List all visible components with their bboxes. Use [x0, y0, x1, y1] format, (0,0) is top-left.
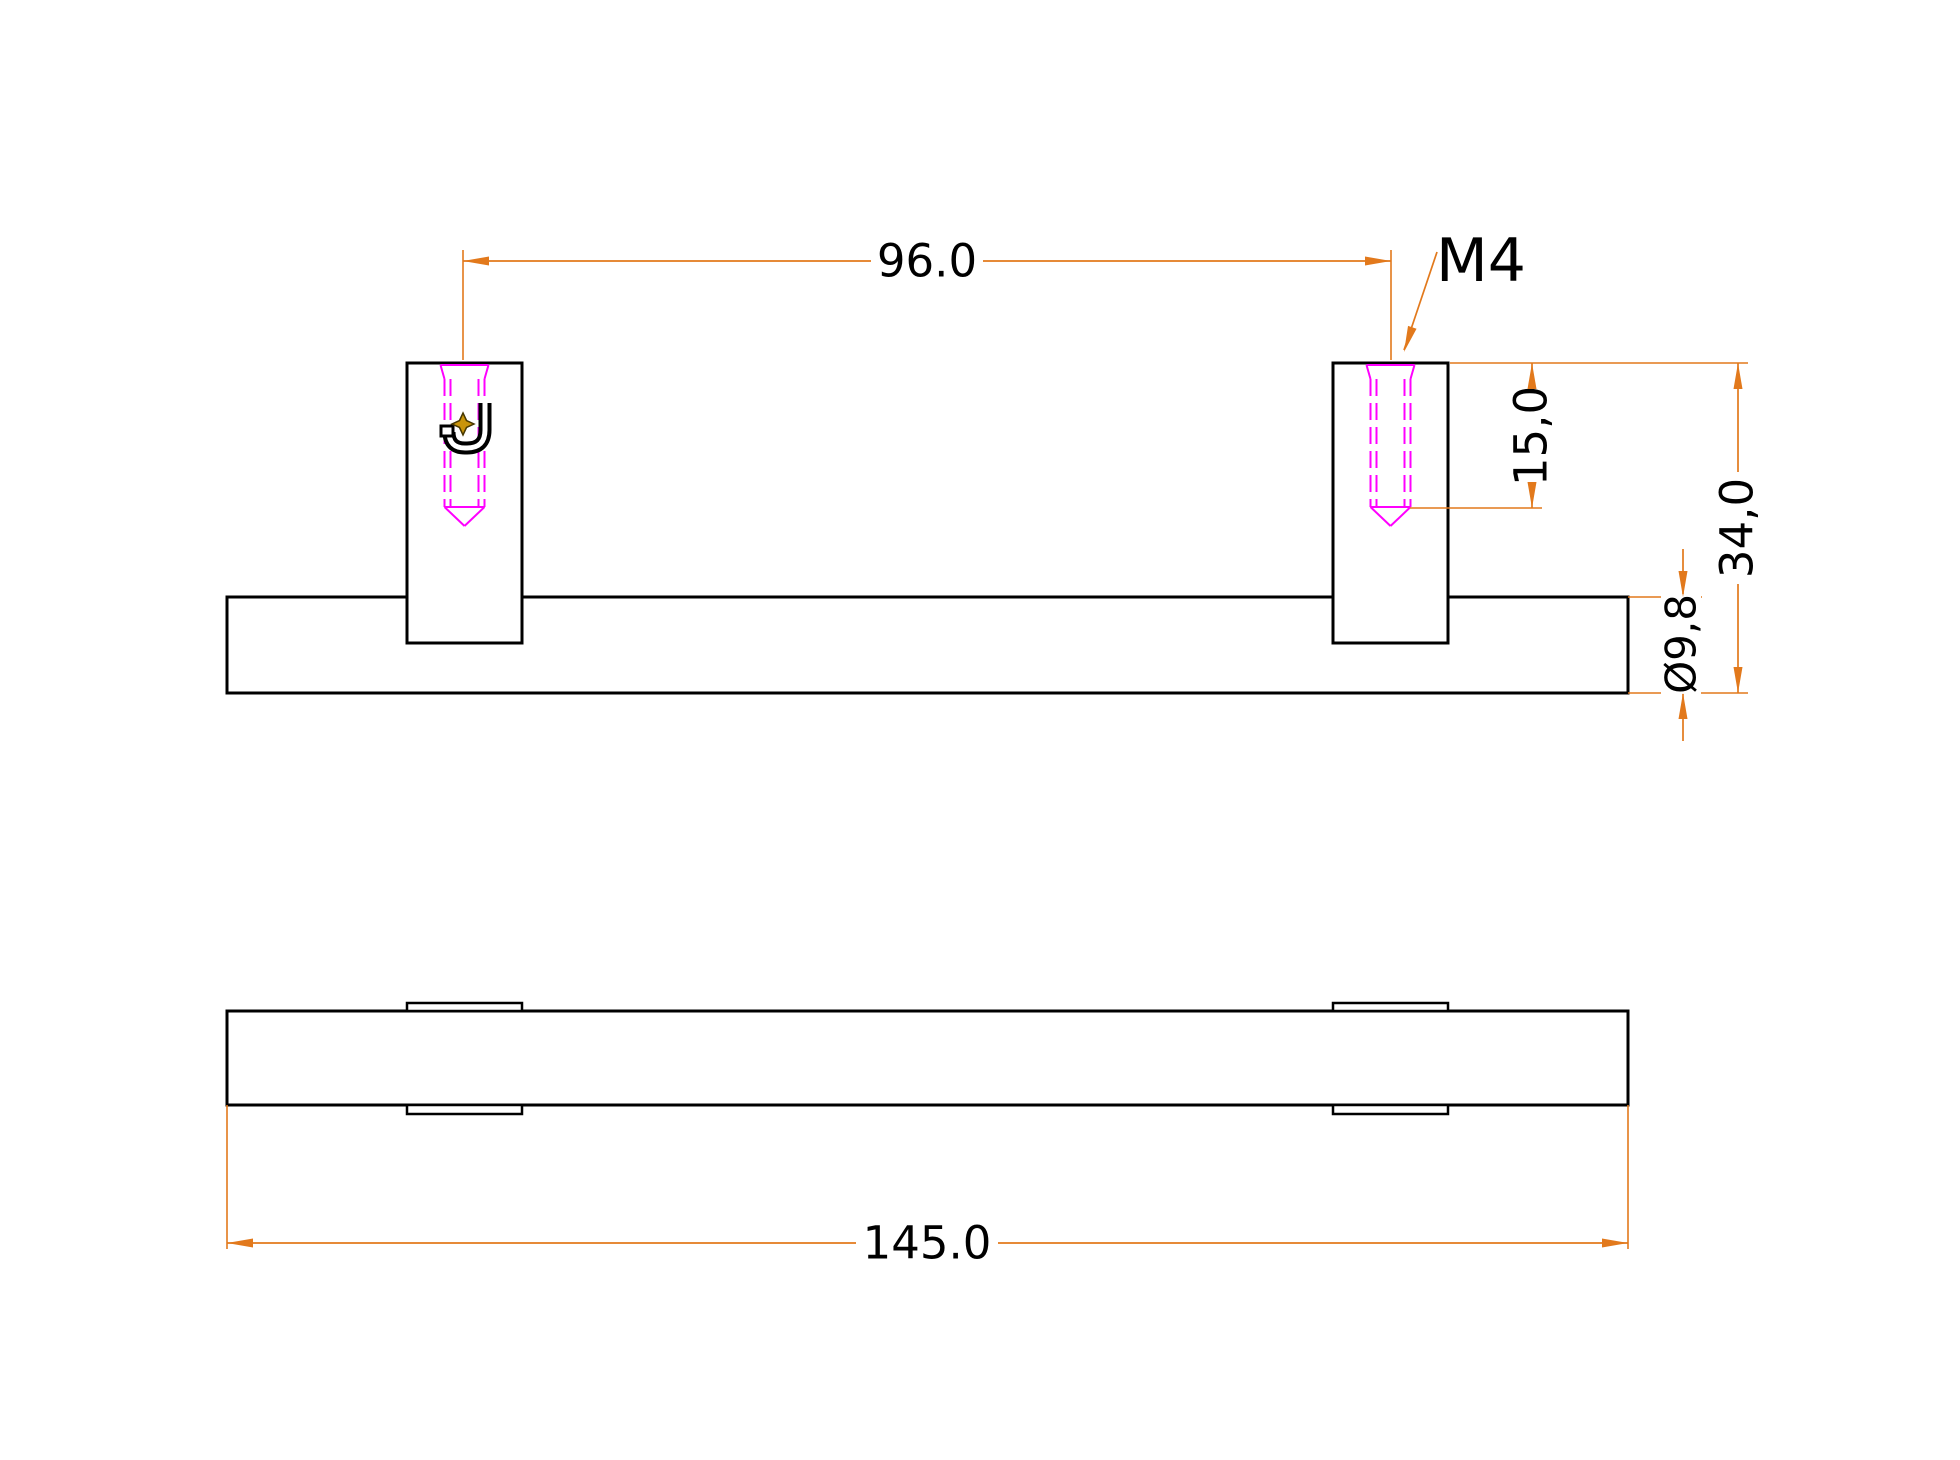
dim-34-label: 34,0 [1711, 478, 1764, 578]
dim-96-label-group: 96.0 [871, 235, 983, 288]
top-view-left-lower-pad [407, 1105, 522, 1114]
dim-diameter-label-group: Ø9,8 [1657, 594, 1706, 694]
top-view-right-lower-pad [1333, 1105, 1448, 1114]
dim-145-label: 145.0 [863, 1217, 992, 1270]
front-view-right-post-outline [1333, 363, 1448, 643]
m4-label-group: M4 [1436, 226, 1526, 296]
dim-34-label-group: 34,0 [1711, 472, 1764, 584]
dim-96-label: 96.0 [877, 235, 977, 288]
technical-drawing: 96.0M415,034,0Ø9,8145.0 [0, 0, 1960, 1460]
dim-15-label: 15,0 [1505, 386, 1558, 486]
drawing-page: 96.0M415,034,0Ø9,8145.0 [0, 0, 1960, 1460]
dim-145-label-group: 145.0 [856, 1217, 998, 1270]
top-view-bar-outline [227, 1011, 1628, 1105]
front-view-left-post-outline [407, 363, 522, 643]
j-mark-serif [441, 426, 453, 436]
top-view-left-upper-pad [407, 1003, 522, 1011]
m4-label: M4 [1436, 226, 1526, 296]
dim-15-label-group: 15,0 [1505, 380, 1558, 492]
dim-diameter-label: Ø9,8 [1657, 594, 1706, 694]
top-view-right-upper-pad [1333, 1003, 1448, 1011]
